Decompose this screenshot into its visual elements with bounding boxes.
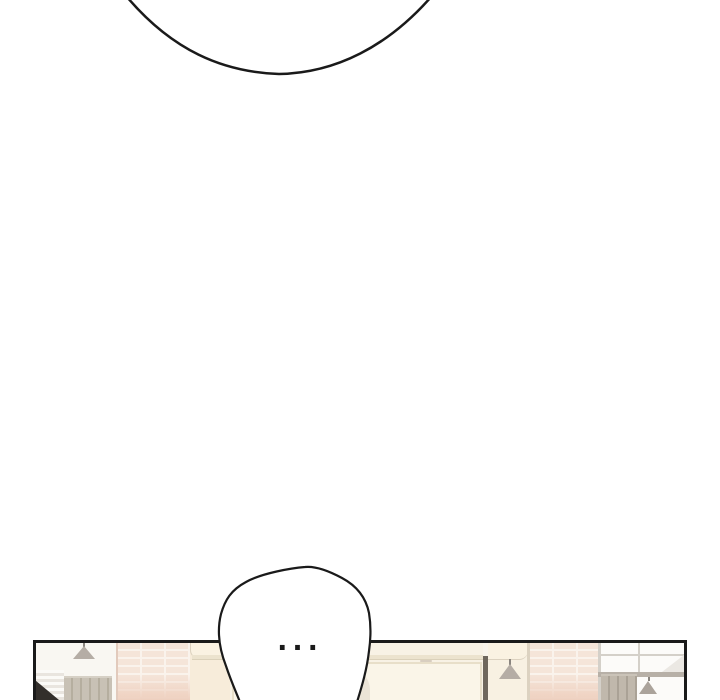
brick-wall-left	[116, 643, 192, 700]
window-mullion-horizontal	[598, 654, 684, 656]
top-bubble-curve	[127, 0, 431, 74]
brick-wall-right	[530, 643, 598, 700]
speech-bubble-ellipsis-text: ...	[265, 628, 335, 655]
top-speech-bubble-arc	[0, 0, 720, 92]
right-drape	[601, 674, 637, 700]
pendant-lamp-icon	[639, 681, 657, 694]
pendant-lamp-icon	[73, 646, 95, 659]
pendant-lamp-icon	[499, 664, 521, 679]
wall-smudge	[420, 660, 432, 662]
webtoon-page: ...	[0, 0, 720, 700]
left-curtain	[64, 676, 112, 700]
window-mullion-vertical	[638, 643, 640, 673]
trim-right	[488, 643, 528, 660]
